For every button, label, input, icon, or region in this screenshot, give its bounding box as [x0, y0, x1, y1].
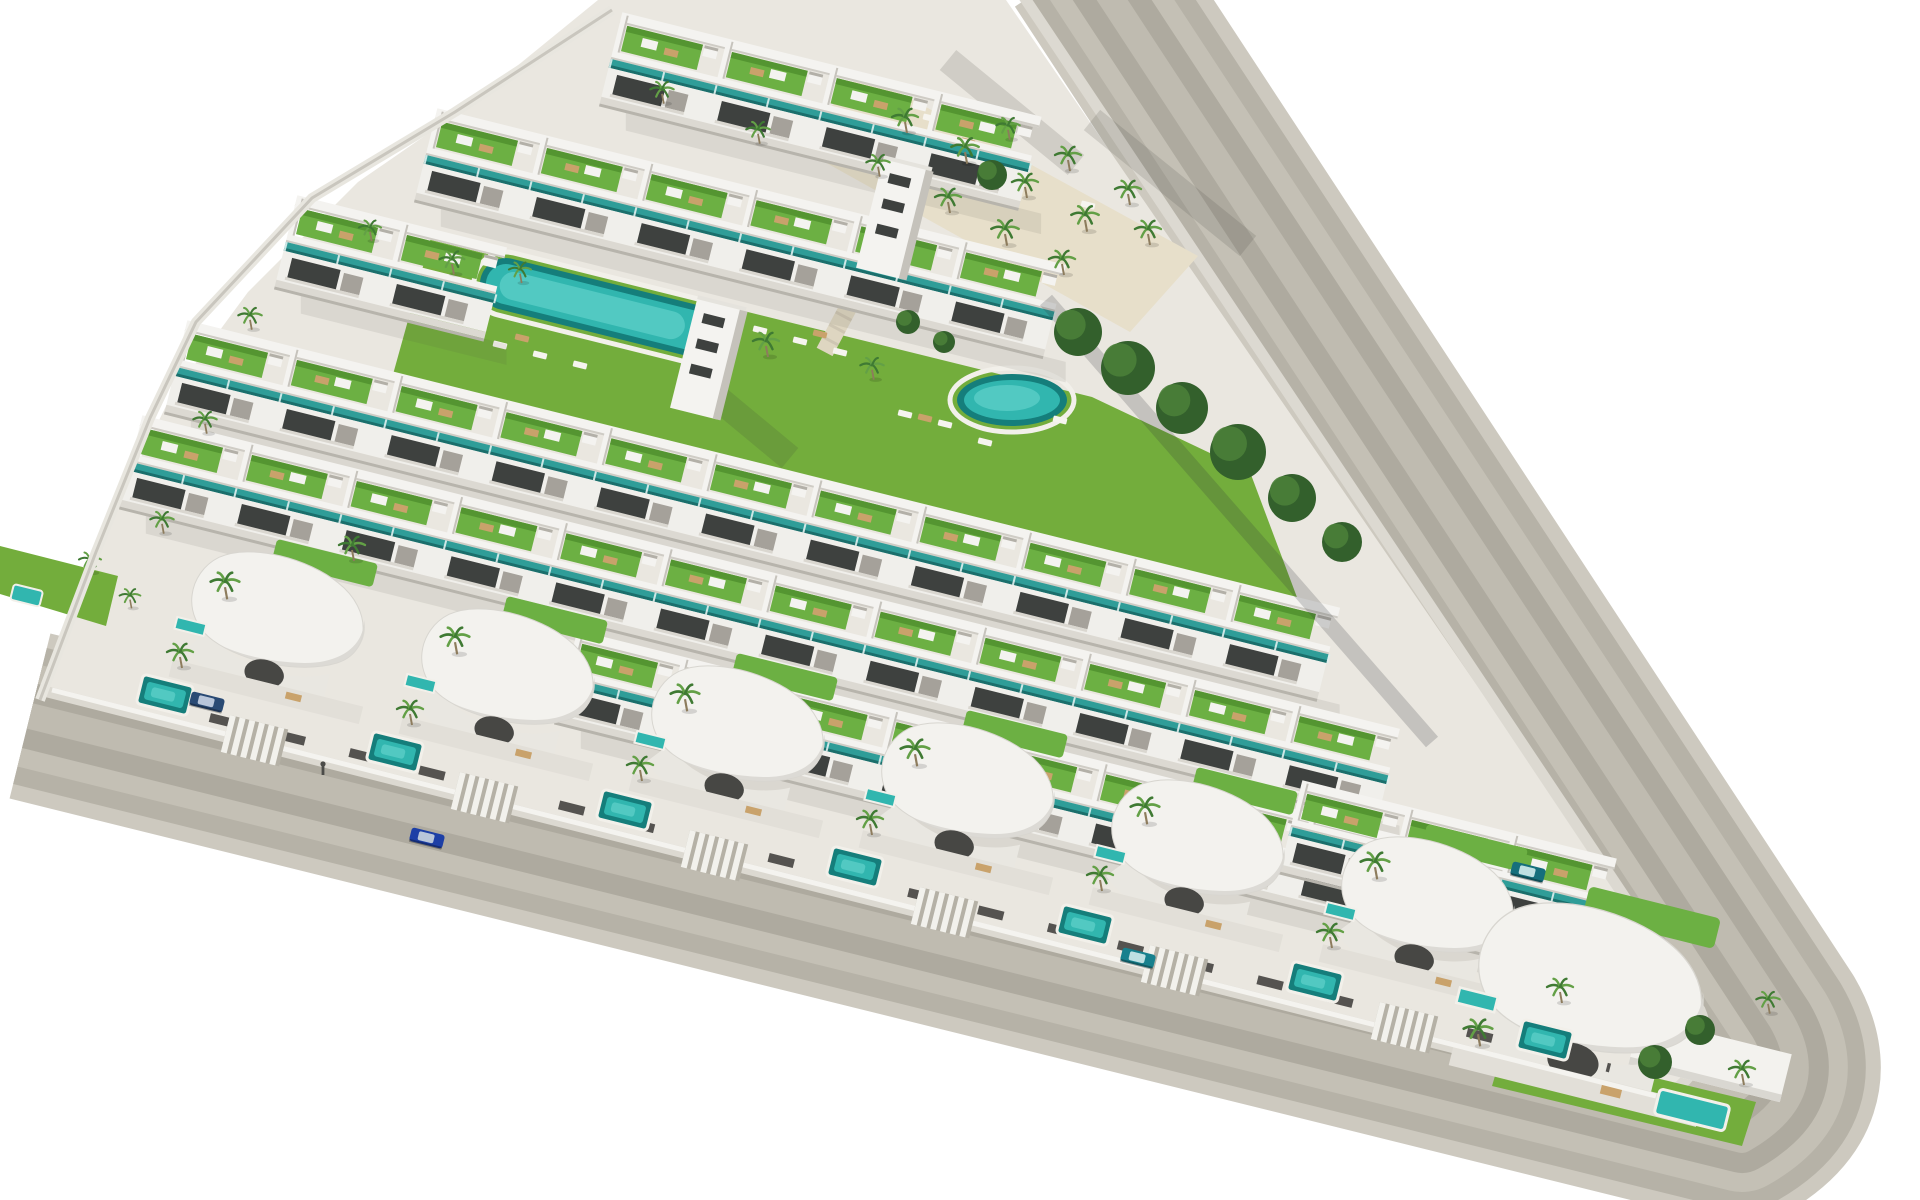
tree: [1322, 522, 1362, 562]
tree: [1210, 424, 1266, 480]
tree: [1638, 1045, 1672, 1079]
tree: [1054, 308, 1102, 356]
aerial-render-canvas: [0, 0, 1920, 1200]
site-plan-3d-render: [0, 0, 1920, 1200]
tree: [977, 160, 1007, 190]
tree: [1268, 474, 1316, 522]
tree: [896, 310, 920, 334]
tree: [933, 331, 955, 353]
tree: [1101, 341, 1155, 395]
tree: [1685, 1015, 1715, 1045]
tree: [1156, 382, 1208, 434]
